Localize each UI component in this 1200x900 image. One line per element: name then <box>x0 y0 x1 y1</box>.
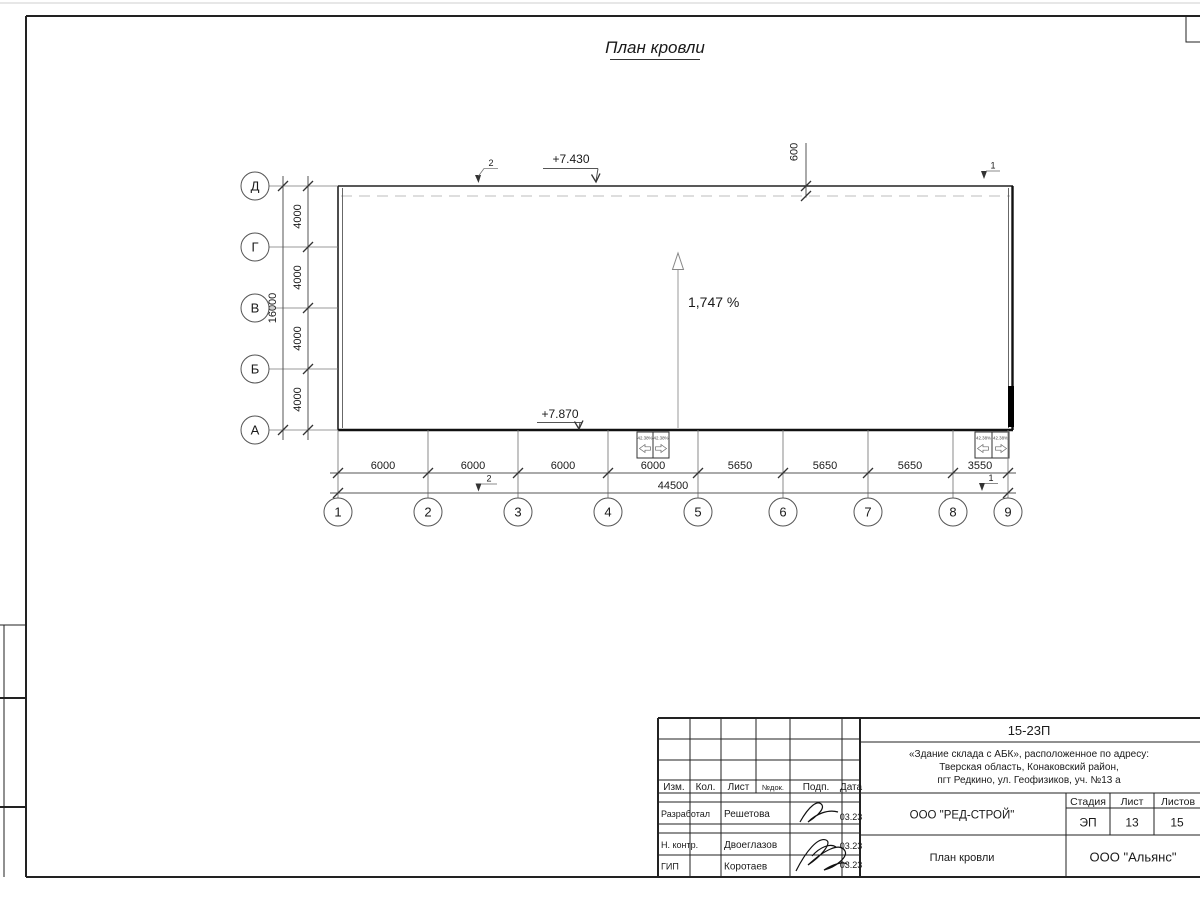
axis-label: 4 <box>604 505 611 520</box>
elevation-top-value: +7.430 <box>552 152 589 166</box>
axis-label: 2 <box>424 505 431 520</box>
tb-designer-company: ООО "РЕД-СТРОЙ" <box>910 809 1015 822</box>
tb-name: Коротаев <box>724 862 767 873</box>
axis-label: 6 <box>779 505 786 520</box>
dim-bottom: 6000 <box>641 460 665 472</box>
dim-bottom: 5650 <box>813 460 837 472</box>
view-marker-bottom-left: 2 <box>476 474 498 492</box>
view-marker-top-right: 1 <box>981 161 1000 180</box>
tb-sheets-value: 15 <box>1170 816 1184 830</box>
tb-sheet-header: Лист <box>1121 796 1144 808</box>
elevation-mark-bottom: +7.870 <box>537 407 583 429</box>
tb-header-sign: Подп. <box>803 782 830 793</box>
axis-label: 9 <box>1004 505 1011 520</box>
elevation-bottom-value: +7.870 <box>541 407 578 421</box>
tb-object-address-line3: пгт Редкино, ул. Геофизиков, уч. №13 а <box>937 774 1121 786</box>
roof-plan-outline <box>338 186 1014 430</box>
dim-left: 4000 <box>292 387 304 411</box>
attachment-stamp <box>0 625 26 877</box>
drain-slope-value: 42.38% <box>638 436 653 441</box>
tb-sheet-name: План кровли <box>930 852 995 864</box>
tb-header-date: Дата <box>840 782 863 793</box>
tb-object-address-line2: Тверская область, Конаковский район, <box>939 761 1119 773</box>
dim-bottom: 6000 <box>461 460 485 472</box>
tb-name: Двоеглазов <box>724 840 777 851</box>
tb-date: 03.23 <box>840 860 863 870</box>
drain-slope-value: 42.38% <box>993 436 1008 441</box>
dim-bottom: 6000 <box>371 460 395 472</box>
axis-label: 7 <box>864 505 871 520</box>
sheet-canvas: План кровли 1,747 % +7.430 +7.870 600 2 <box>0 0 1200 900</box>
dim-bottom-total: 44500 <box>658 480 689 492</box>
sheet-frame <box>26 16 1200 877</box>
view-marker-top-left: 2 <box>475 158 498 183</box>
parapet-offset-value: 600 <box>789 143 801 161</box>
left-dimension-chain: 4000 4000 4000 4000 16000 <box>267 176 338 440</box>
axis-label: 8 <box>949 505 956 520</box>
dim-left: 4000 <box>292 265 304 289</box>
dim-left: 4000 <box>292 326 304 350</box>
drain-slope-value: 42.38% <box>976 436 991 441</box>
tb-role: Н. контр. <box>661 840 698 850</box>
axis-label: 1 <box>334 505 341 520</box>
tb-header-list: Лист <box>728 782 750 793</box>
tb-object-address-line1: «Здание склада с АБК», расположенное по … <box>909 749 1149 760</box>
dim-bottom: 5650 <box>898 460 922 472</box>
tb-role: ГИП <box>661 862 679 872</box>
title-block: Изм. Кол. Лист №док. Подп. Дата Разработ… <box>658 718 1200 877</box>
dim-bottom: 5650 <box>728 460 752 472</box>
dim-left: 4000 <box>292 204 304 228</box>
tb-stage-value: ЭП <box>1079 816 1096 830</box>
axis-label: А <box>251 423 260 438</box>
view-marker-bottom-left-label: 2 <box>486 474 491 484</box>
view-marker-bottom-right: 1 <box>979 473 998 491</box>
drain-funnel-pair-right: 42.38% 42.38% <box>975 432 1009 458</box>
drawing-sheet: { "drawing_title": "План кровли", "plan"… <box>0 0 1200 900</box>
axis-label: Г <box>251 240 258 255</box>
tb-sheet-value: 13 <box>1125 816 1139 830</box>
bottom-dimension-chain: 6000 6000 6000 6000 5650 5650 5650 3550 … <box>330 430 1016 498</box>
vertical-axes: Д Г В Б А <box>241 172 269 444</box>
axis-label: Д <box>251 179 260 194</box>
tb-header-kol: Кол. <box>696 782 716 793</box>
tb-document-code: 15-23П <box>1008 723 1051 738</box>
signature <box>800 803 838 822</box>
axis-label: 3 <box>514 505 521 520</box>
parapet-offset-dimension: 600 <box>789 143 812 201</box>
slope-arrow: 1,747 % <box>673 253 740 428</box>
tb-role: Разработал <box>661 809 710 819</box>
frame-corner-cell <box>1186 16 1200 42</box>
view-marker-top-right-label: 1 <box>990 161 995 171</box>
horizontal-axes: 1 2 3 4 5 6 7 8 9 <box>324 498 1022 526</box>
drawing-title: План кровли <box>605 38 705 57</box>
elevation-mark-top: +7.430 <box>543 152 600 182</box>
dim-bottom: 3550 <box>968 460 992 472</box>
axis-label: Б <box>251 362 260 377</box>
roof-edge-thick-segment <box>1008 386 1014 427</box>
tb-header-izm: Изм. <box>663 782 684 793</box>
drain-funnel-pair-left: 42.38% 42.38% <box>637 432 669 458</box>
axis-label: В <box>251 301 260 316</box>
slope-arrow-head <box>673 253 684 270</box>
axis-label: 5 <box>694 505 701 520</box>
view-marker-bottom-right-label: 1 <box>988 473 993 483</box>
dim-bottom: 6000 <box>551 460 575 472</box>
view-marker-top-left-label: 2 <box>488 158 493 168</box>
tb-date: 03.23 <box>840 812 863 822</box>
tb-sheets-header: Листов <box>1161 796 1196 808</box>
slope-value: 1,747 % <box>688 294 739 310</box>
drain-slope-value: 42.38% <box>654 436 669 441</box>
tb-header-doc: №док. <box>762 783 784 792</box>
tb-customer-company: ООО "Альянс" <box>1090 850 1177 865</box>
tb-name: Решетова <box>724 809 770 820</box>
tb-stage-header: Стадия <box>1070 796 1106 808</box>
